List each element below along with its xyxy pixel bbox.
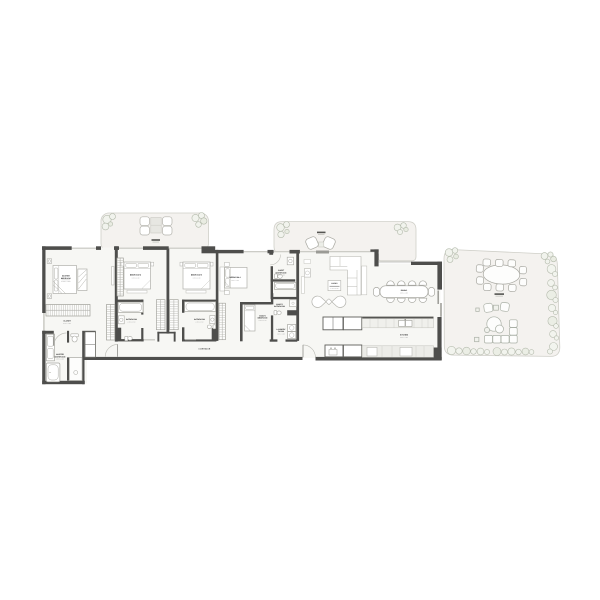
svg-text:BATHROOM: BATHROOM: [194, 318, 205, 321]
svg-text:BEDROOM: BEDROOM: [258, 317, 268, 320]
svg-text:2.6m x 2.2m: 2.6m x 2.2m: [259, 320, 268, 322]
svg-text:CLOSET: CLOSET: [63, 320, 71, 323]
svg-text:ROOM: ROOM: [278, 330, 284, 333]
svg-text:BATHROOM: BATHROOM: [276, 271, 287, 274]
svg-text:LIVING: LIVING: [331, 282, 338, 285]
svg-text:BATHROOM: BATHROOM: [274, 305, 285, 308]
svg-text:2.4m x 1.6m: 2.4m x 1.6m: [128, 321, 137, 323]
svg-text:4.70m x 4.20m: 4.70m x 4.20m: [61, 281, 71, 283]
svg-text:BEDROOM 4: BEDROOM 4: [229, 276, 241, 279]
svg-text:3.6m x 3.4m: 3.6m x 3.4m: [132, 277, 141, 279]
svg-text:3.0m x 2.4m: 3.0m x 2.4m: [56, 359, 65, 361]
svg-text:BATHROOM: BATHROOM: [55, 355, 66, 358]
svg-text:KITCHEN: KITCHEN: [400, 334, 409, 337]
svg-text:BEDROOM 2: BEDROOM 2: [130, 274, 141, 277]
svg-text:MASTER: MASTER: [62, 275, 70, 278]
svg-text:6.1m x 5.0m: 6.1m x 5.0m: [331, 288, 340, 290]
svg-text:5.9m x 3.0m: 5.9m x 3.0m: [400, 337, 409, 339]
svg-text:2.2m x 1.6m: 2.2m x 1.6m: [277, 275, 286, 277]
svg-text:BEDROOM 3: BEDROOM 3: [191, 274, 202, 277]
svg-text:2.4m x 1.6m: 2.4m x 1.6m: [196, 321, 205, 323]
svg-text:1.8m x 1.6m: 1.8m x 1.6m: [277, 333, 286, 335]
svg-text:CORRIDOR: CORRIDOR: [198, 348, 210, 351]
svg-text:4.7m x 1.6m: 4.7m x 1.6m: [63, 323, 72, 325]
svg-text:4.0m x 2.0m: 4.0m x 2.0m: [400, 293, 409, 295]
svg-text:BATHROOM: BATHROOM: [126, 318, 137, 321]
svg-text:3.9m x 3.2m: 3.9m x 3.2m: [231, 280, 240, 282]
svg-text:3.6m x 3.4m: 3.6m x 3.4m: [193, 277, 202, 279]
svg-text:DINING: DINING: [401, 289, 408, 292]
